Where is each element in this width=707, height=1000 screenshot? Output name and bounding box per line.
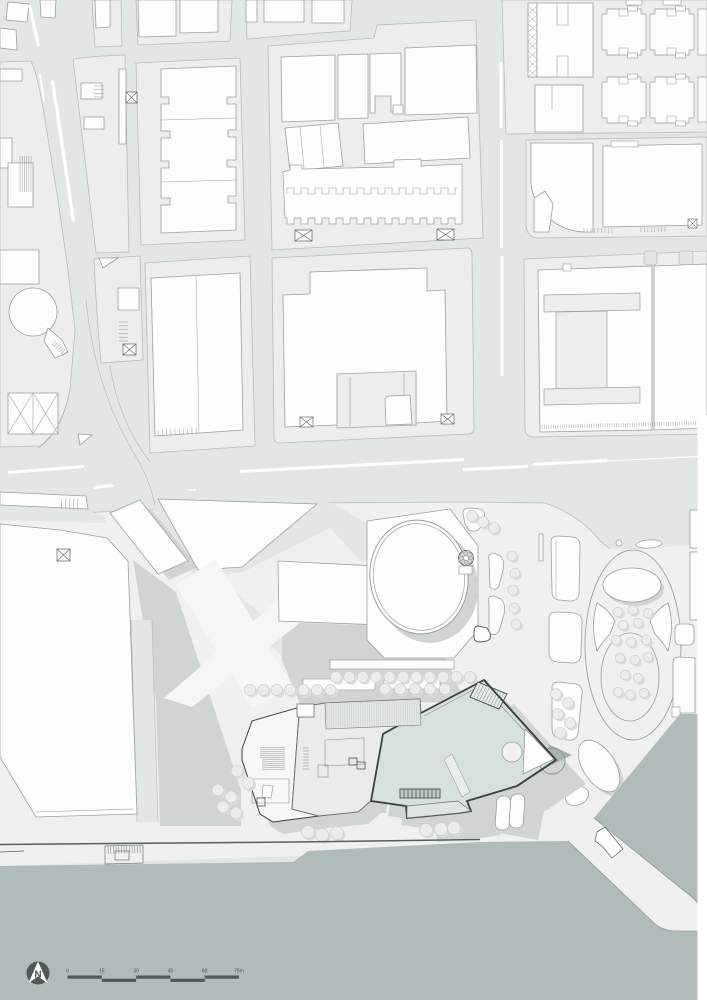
svg-text:N: N <box>34 970 41 981</box>
svg-text:0: 0 <box>66 969 69 975</box>
svg-text:45: 45 <box>168 969 174 975</box>
svg-text:30: 30 <box>133 969 139 975</box>
svg-text:60: 60 <box>202 969 208 975</box>
svg-text:75m: 75m <box>234 969 244 975</box>
svg-text:15: 15 <box>99 969 105 975</box>
